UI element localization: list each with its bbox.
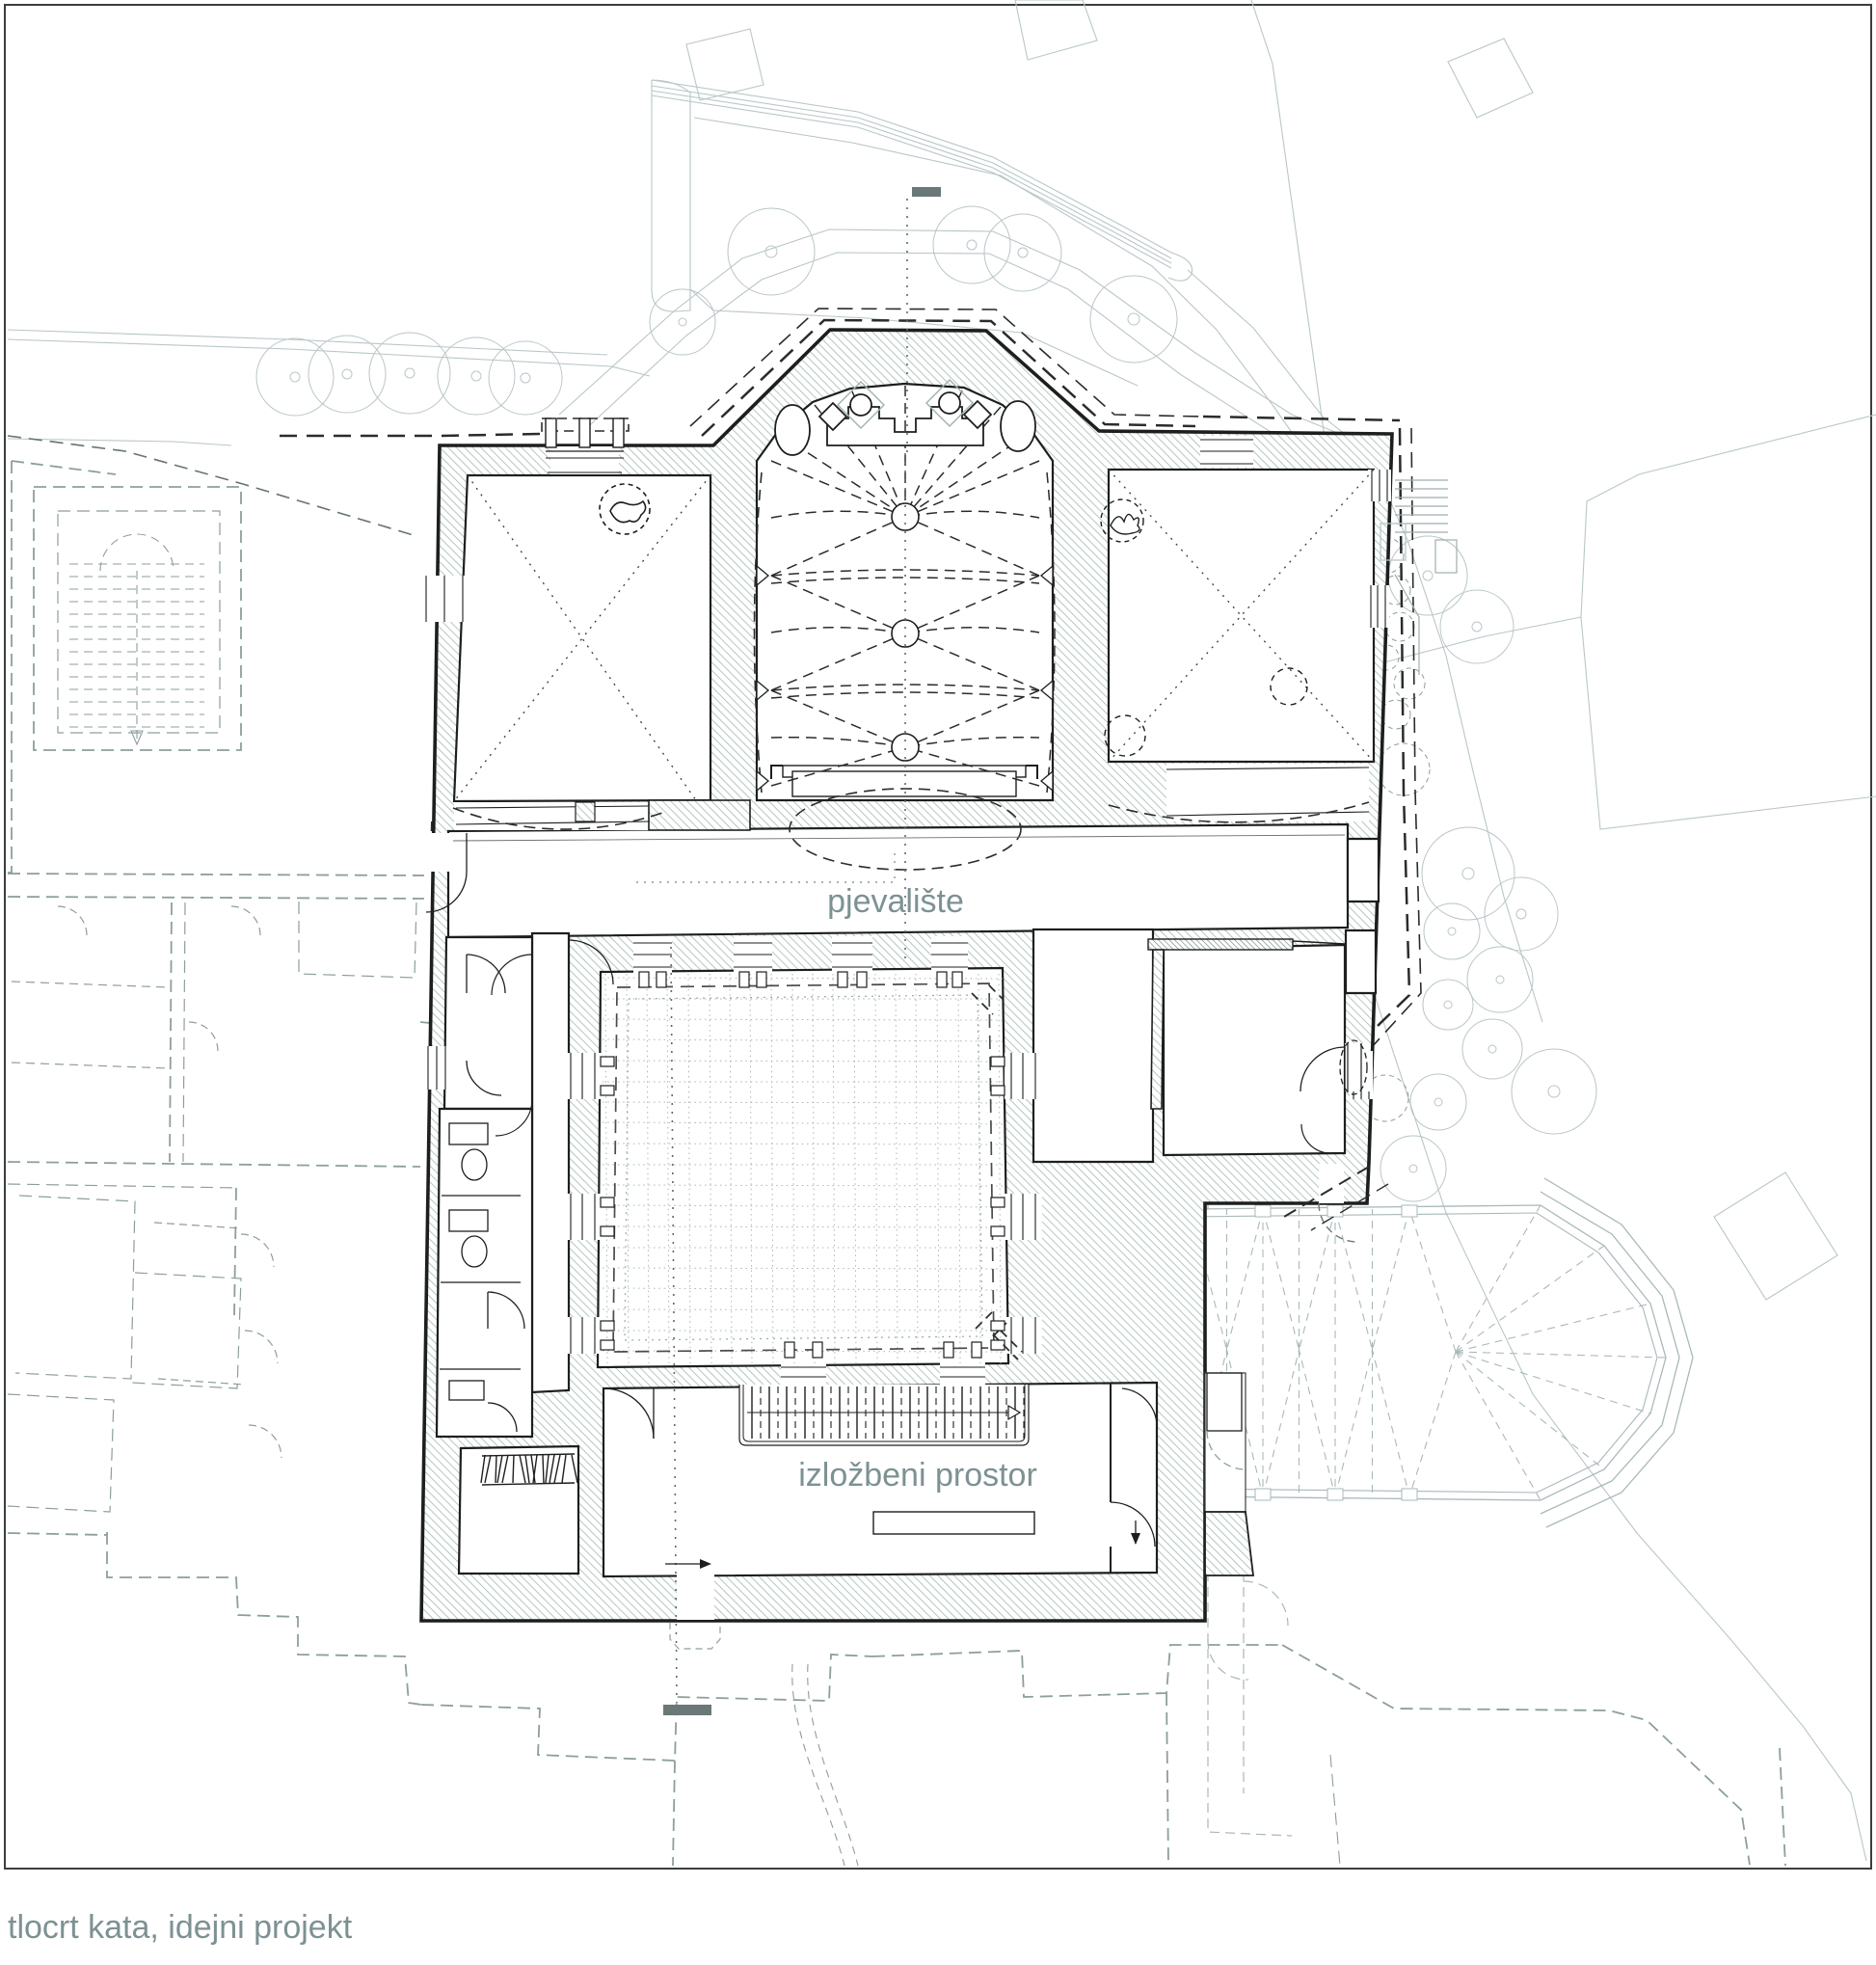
svg-text:pjevalište: pjevalište [827,883,964,920]
svg-text:izložbeni prostor: izložbeni prostor [798,1457,1037,1494]
svg-text:tlocrt kata, idejni projekt: tlocrt kata, idejni projekt [8,1909,353,1946]
